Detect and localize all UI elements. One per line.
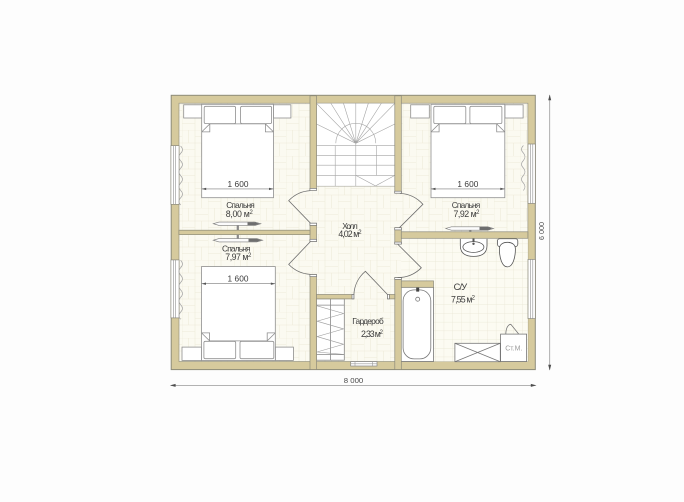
svg-text:С/У: С/У bbox=[454, 282, 468, 292]
svg-text:8,00 м2: 8,00 м2 bbox=[226, 209, 254, 219]
svg-text:2,33 м2: 2,33 м2 bbox=[361, 329, 384, 339]
svg-text:Гардероб: Гардероб bbox=[352, 316, 384, 326]
svg-text:1 600: 1 600 bbox=[228, 179, 249, 189]
svg-text:8 000: 8 000 bbox=[344, 376, 364, 385]
svg-text:7,92 м2: 7,92 м2 bbox=[454, 209, 481, 219]
svg-text:Ст.М.: Ст.М. bbox=[505, 346, 522, 353]
svg-text:1 600: 1 600 bbox=[228, 274, 249, 284]
svg-text:4,02 м2: 4,02 м2 bbox=[338, 229, 362, 239]
svg-text:7,55 м2: 7,55 м2 bbox=[451, 295, 476, 305]
svg-text:7,97 м2: 7,97 м2 bbox=[225, 252, 252, 262]
svg-text:6 000: 6 000 bbox=[537, 222, 546, 240]
svg-text:1 600: 1 600 bbox=[457, 179, 478, 189]
